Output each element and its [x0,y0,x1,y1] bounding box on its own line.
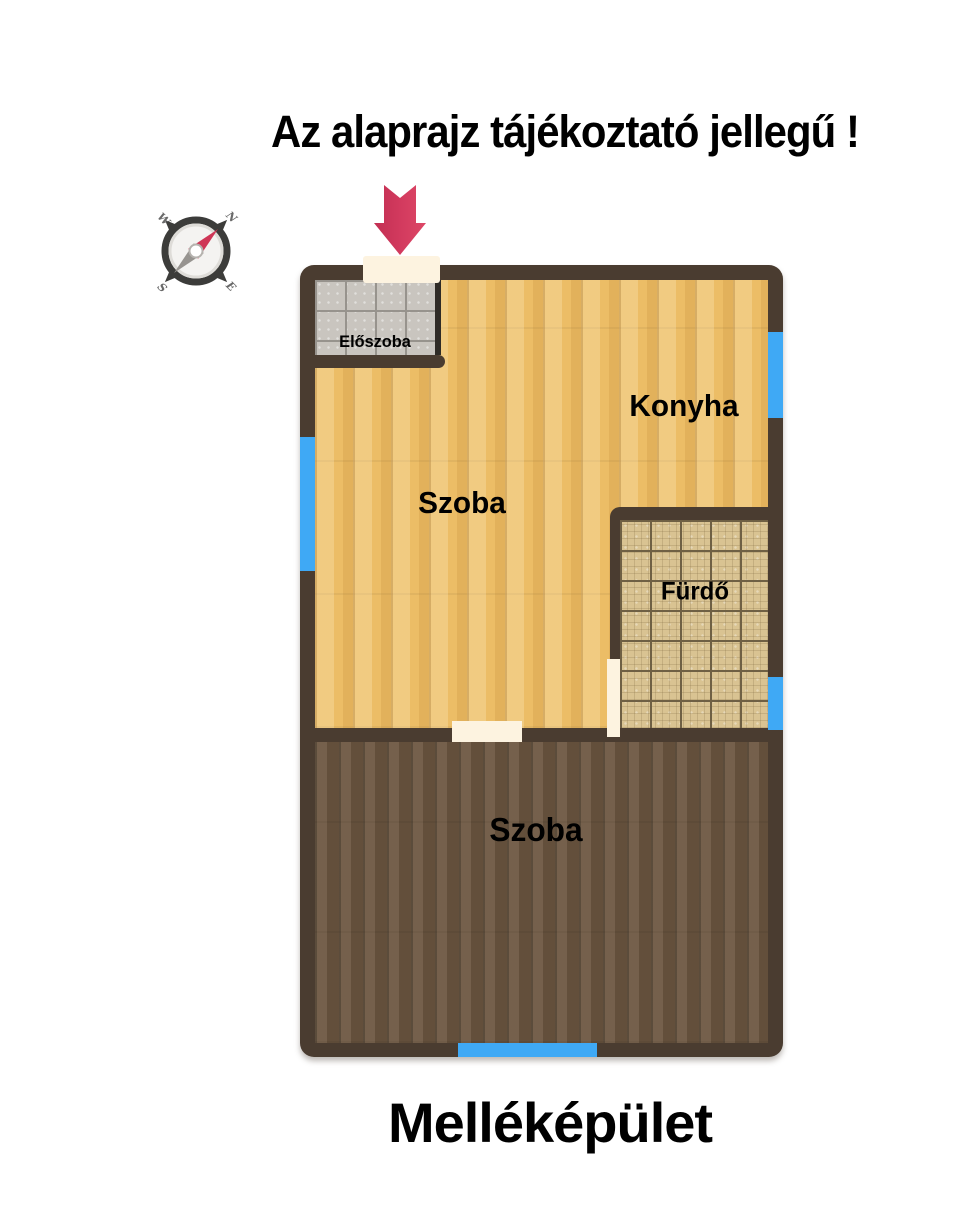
room-label-furdo: Fürdő [661,578,729,607]
building-label: Melléképület [90,1090,980,1155]
room-label-konyha: Konyha [629,388,738,424]
eloszoba-wall-bottom [300,355,445,368]
room-label-szoba-upper: Szoba [418,485,506,521]
compass-label-s: S [155,280,170,295]
compass-icon: W N S E [148,203,244,299]
room-label-eloszoba: Előszoba [339,332,411,352]
door-opening-entrance [363,256,440,283]
window-marker-right [768,332,783,418]
room-furdo: Fürdő [610,507,783,742]
page-title: Az alaprajz tájékoztató jellegű ! [179,106,951,158]
window-marker-left [300,437,315,571]
window-marker-bottom [458,1043,597,1057]
window-marker-bath [768,677,783,730]
floorplan-page: Az alaprajz tájékoztató jellegű ! W N S … [0,0,980,1220]
room-label-szoba-lower: Szoba [489,811,582,849]
floorplan: Fürdő Előszoba Szoba Konyha Szoba [300,265,783,1057]
room-szoba-lower-floor [315,742,768,1043]
room-furdo-floor [620,520,768,728]
door-opening-middle [452,721,522,742]
door-opening-bath [607,659,620,737]
entrance-arrow-icon [374,185,426,257]
eloszoba-wall-right [435,280,441,355]
